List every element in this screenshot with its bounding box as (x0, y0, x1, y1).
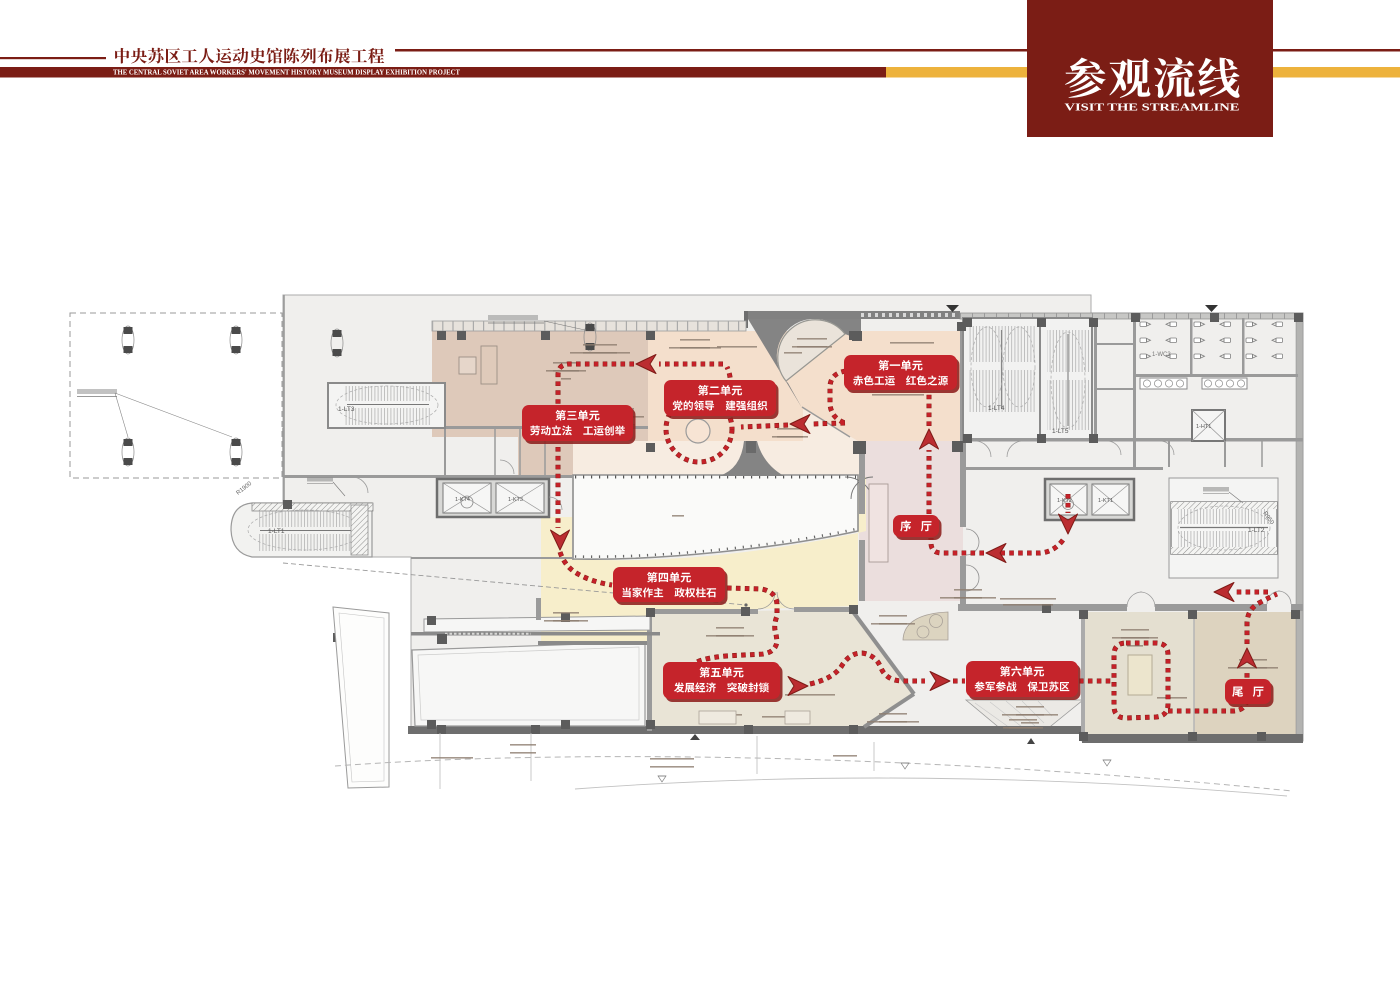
svg-text:1-LT5: 1-LT5 (1052, 428, 1069, 435)
svg-text:VISIT THE STREAMLINE: VISIT THE STREAMLINE (1065, 103, 1240, 114)
svg-text:1-KT3: 1-KT3 (508, 497, 523, 503)
svg-text:1-KT4: 1-KT4 (455, 497, 470, 503)
svg-text:1-LT4: 1-LT4 (988, 405, 1005, 412)
svg-text:1-LT2: 1-LT2 (1248, 527, 1265, 534)
svg-text:THE CENTRAL SOVIET AREA WORKER: THE CENTRAL SOVIET AREA WORKERS' MOVEMEN… (113, 69, 460, 77)
svg-text:1-KT1: 1-KT1 (1098, 498, 1113, 504)
svg-text:1-LT1: 1-LT1 (268, 528, 285, 535)
svg-text:1-WC3: 1-WC3 (1152, 352, 1171, 358)
svg-text:1-HT1: 1-HT1 (1196, 424, 1211, 430)
svg-text:1-LT3: 1-LT3 (338, 406, 355, 413)
svg-text:R1900: R1900 (236, 481, 254, 497)
